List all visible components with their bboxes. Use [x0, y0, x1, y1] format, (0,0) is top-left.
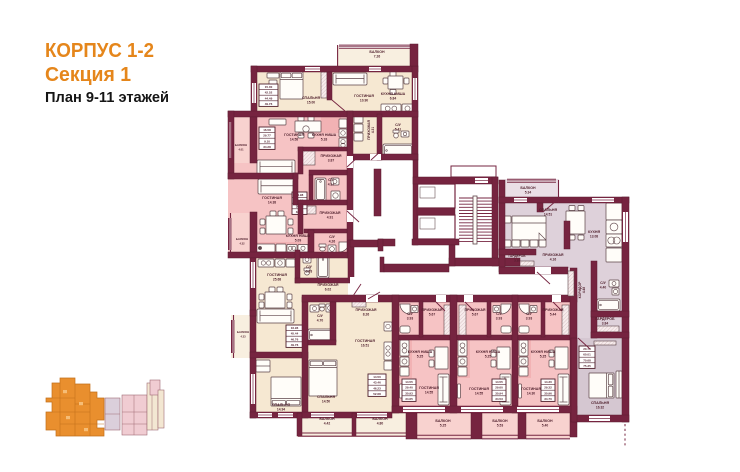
- svg-text:14.55: 14.55: [475, 392, 483, 396]
- svg-text:16.51: 16.51: [361, 344, 369, 348]
- svg-text:СПАЛЬНЯ: СПАЛЬНЯ: [317, 395, 336, 399]
- svg-text:БАЛКОН: БАЛКОН: [537, 419, 553, 423]
- svg-text:6.02: 6.02: [325, 288, 332, 292]
- svg-text:7.26: 7.26: [374, 55, 381, 59]
- svg-text:5.44: 5.44: [550, 313, 557, 317]
- svg-text:16.32: 16.32: [596, 406, 604, 410]
- svg-text:С/У: С/У: [329, 235, 336, 239]
- svg-text:4.31: 4.31: [371, 127, 375, 133]
- svg-text:44.49: 44.49: [265, 96, 273, 100]
- svg-text:75.35: 75.35: [583, 364, 591, 368]
- svg-text:34.53: 34.53: [495, 397, 503, 401]
- svg-text:3.35: 3.35: [514, 259, 520, 263]
- svg-text:ПРИХОЖАЯ: ПРИХОЖАЯ: [355, 308, 376, 312]
- svg-text:4.40: 4.40: [600, 286, 607, 290]
- svg-text:БАЛКОН: БАЛКОН: [236, 237, 248, 241]
- svg-text:БАЛКОН: БАЛКОН: [492, 419, 508, 423]
- svg-text:14.55: 14.55: [495, 380, 503, 384]
- svg-text:БАЛКОН: БАЛКОН: [237, 330, 249, 334]
- svg-text:30.94: 30.94: [495, 391, 503, 395]
- svg-text:14.94: 14.94: [277, 408, 285, 412]
- svg-text:5.25: 5.25: [440, 424, 447, 428]
- svg-text:ГОСТИНАЯ: ГОСТИНАЯ: [419, 386, 439, 390]
- svg-text:25.68: 25.68: [273, 278, 281, 282]
- svg-text:6.84: 6.84: [390, 97, 397, 101]
- svg-text:5.67: 5.67: [429, 313, 436, 317]
- svg-text:5.41: 5.41: [395, 128, 402, 132]
- svg-text:ПРИХОЖАЯ: ПРИХОЖАЯ: [542, 308, 563, 312]
- svg-text:ГАРДЕРОБ: ГАРДЕРОБ: [595, 317, 615, 321]
- svg-text:5.53: 5.53: [497, 424, 504, 428]
- svg-text:ГОСТИНАЯ: ГОСТИНАЯ: [469, 387, 489, 391]
- svg-text:14.50: 14.50: [373, 375, 381, 379]
- svg-text:5.34: 5.34: [525, 191, 532, 195]
- svg-text:46.23: 46.23: [373, 386, 381, 390]
- svg-text:14.55: 14.55: [405, 380, 413, 384]
- svg-text:БАЛКОН: БАЛКОН: [319, 417, 335, 421]
- svg-text:3.93: 3.93: [496, 317, 503, 321]
- svg-text:4.26: 4.26: [329, 240, 336, 244]
- svg-text:5.67: 5.67: [472, 313, 479, 317]
- svg-text:4.91: 4.91: [327, 216, 334, 220]
- svg-text:15.00: 15.00: [265, 85, 273, 89]
- svg-text:14.30: 14.30: [527, 392, 535, 396]
- svg-text:ГОСТИНАЯ: ГОСТИНАЯ: [267, 273, 287, 277]
- svg-text:5.18: 5.18: [321, 138, 328, 142]
- svg-text:5.09: 5.09: [295, 239, 302, 243]
- svg-text:КУХНЯ НИША: КУХНЯ НИША: [312, 133, 337, 137]
- svg-text:БАЛКОН: БАЛКОН: [435, 419, 451, 423]
- svg-text:БАЛКОН: БАЛКОН: [520, 186, 536, 190]
- svg-text:34.28: 34.28: [263, 145, 271, 149]
- svg-text:4.80: 4.80: [377, 422, 384, 426]
- svg-text:49.76: 49.76: [265, 102, 273, 106]
- svg-text:5.40: 5.40: [542, 424, 549, 428]
- svg-text:КУХНЯ НИША: КУХНЯ НИША: [531, 350, 556, 354]
- svg-text:С/У: С/У: [407, 312, 414, 316]
- svg-text:Секция 1: Секция 1: [45, 64, 131, 86]
- svg-text:29.32: 29.32: [544, 386, 552, 390]
- svg-text:14.38: 14.38: [268, 201, 276, 205]
- svg-text:4.32: 4.32: [239, 242, 245, 246]
- svg-text:10.90: 10.90: [360, 99, 368, 103]
- svg-text:С/У: С/У: [306, 265, 313, 269]
- svg-text:14.58: 14.58: [290, 138, 298, 142]
- svg-text:30.96: 30.96: [544, 391, 552, 395]
- svg-text:5.25: 5.25: [485, 355, 492, 359]
- svg-text:3.93: 3.93: [407, 317, 414, 321]
- svg-text:ПРИХОЖАЯ: ПРИХОЖАЯ: [464, 308, 485, 312]
- svg-text:14.55: 14.55: [425, 391, 433, 395]
- svg-text:С/У: С/У: [395, 123, 402, 127]
- svg-text:9.10: 9.10: [264, 139, 270, 143]
- svg-text:15.00: 15.00: [307, 101, 315, 105]
- svg-text:70.68: 70.68: [583, 358, 591, 362]
- svg-text:16.96: 16.96: [291, 326, 299, 330]
- svg-text:КУХНЯ НИША: КУХНЯ НИША: [286, 234, 311, 238]
- svg-text:План 9-11 этажей: План 9-11 этажей: [45, 89, 169, 106]
- svg-text:3.87: 3.87: [328, 159, 335, 163]
- svg-text:13.08: 13.08: [590, 235, 598, 239]
- svg-text:14.50: 14.50: [322, 400, 330, 404]
- svg-text:СПАЛЬНЯ: СПАЛЬНЯ: [302, 96, 321, 100]
- svg-text:5.25: 5.25: [540, 355, 547, 359]
- svg-text:52.68: 52.68: [373, 392, 381, 396]
- svg-text:4.01: 4.01: [238, 148, 244, 152]
- svg-text:43.46: 43.46: [373, 381, 381, 385]
- svg-text:КУХНЯ НИША: КУХНЯ НИША: [381, 92, 406, 96]
- svg-text:16.58: 16.58: [263, 128, 271, 132]
- svg-text:КУХНЯ НИША: КУХНЯ НИША: [408, 350, 433, 354]
- svg-text:ГОСТИНАЯ: ГОСТИНАЯ: [284, 133, 304, 137]
- svg-text:42.52: 42.52: [265, 91, 273, 95]
- svg-text:49.76: 49.76: [291, 343, 299, 347]
- svg-text:14.30: 14.30: [544, 380, 552, 384]
- svg-text:ПРИХОЖАЯ: ПРИХОЖАЯ: [319, 211, 340, 215]
- svg-text:46.76: 46.76: [291, 337, 299, 341]
- svg-text:СПАЛЬНЯ: СПАЛЬНЯ: [539, 208, 558, 212]
- svg-text:60.01: 60.01: [583, 353, 591, 357]
- svg-text:29.60: 29.60: [495, 386, 503, 390]
- svg-text:ГОСТИНАЯ: ГОСТИНАЯ: [355, 339, 375, 343]
- svg-text:ГОСТИНАЯ: ГОСТИНАЯ: [354, 94, 374, 98]
- svg-text:ГОСТИНАЯ: ГОСТИНАЯ: [262, 196, 282, 200]
- svg-text:45.44: 45.44: [291, 332, 299, 336]
- svg-text:4.70: 4.70: [317, 319, 324, 323]
- svg-text:ПРИХОЖАЯ: ПРИХОЖАЯ: [542, 253, 563, 257]
- svg-text:СПАЛЬНЯ: СПАЛЬНЯ: [591, 401, 610, 405]
- svg-text:4.33: 4.33: [240, 335, 246, 339]
- svg-text:4.48: 4.48: [582, 287, 586, 293]
- svg-text:С/У: С/У: [317, 314, 324, 318]
- svg-text:3.93: 3.93: [306, 270, 313, 274]
- svg-text:4.42: 4.42: [324, 422, 331, 426]
- svg-text:29.40: 29.40: [405, 386, 413, 390]
- svg-text:14.51: 14.51: [544, 213, 552, 217]
- svg-text:29.77: 29.77: [263, 134, 271, 138]
- svg-text:3.84: 3.84: [602, 322, 609, 326]
- svg-text:4.16: 4.16: [550, 258, 557, 262]
- svg-text:С/У: С/У: [600, 281, 607, 285]
- svg-text:34.70: 34.70: [544, 397, 552, 401]
- svg-text:БАЛКОН: БАЛКОН: [369, 50, 385, 54]
- svg-text:ПРИХОЖАЯ: ПРИХОЖАЯ: [320, 154, 341, 158]
- svg-text:СПАЛЬНЯ: СПАЛЬНЯ: [272, 403, 291, 407]
- svg-text:БАЛКОН: БАЛКОН: [235, 143, 247, 147]
- svg-text:С/У: С/У: [496, 312, 503, 316]
- svg-text:ГОСТИНАЯ: ГОСТИНАЯ: [521, 387, 541, 391]
- svg-text:ГАРДЕРОБ: ГАРДЕРОБ: [508, 254, 526, 258]
- svg-text:КУХНЯ НИША: КУХНЯ НИША: [476, 350, 501, 354]
- svg-text:КОРПУС 1-2: КОРПУС 1-2: [45, 40, 154, 62]
- svg-text:БАЛКОН: БАЛКОН: [372, 417, 388, 421]
- svg-text:30.93: 30.93: [405, 391, 413, 395]
- svg-text:34.65: 34.65: [405, 397, 413, 401]
- svg-text:КУХНЯ: КУХНЯ: [588, 230, 601, 234]
- svg-text:С/У: С/У: [328, 178, 335, 182]
- svg-text:4.14: 4.14: [328, 183, 335, 187]
- svg-text:ПРИХОЖАЯ: ПРИХОЖАЯ: [317, 283, 338, 287]
- svg-text:С/У: С/У: [526, 312, 533, 316]
- svg-text:3.93: 3.93: [526, 317, 533, 321]
- svg-text:ПРИХОЖАЯ: ПРИХОЖАЯ: [421, 308, 442, 312]
- svg-text:8.26: 8.26: [363, 313, 370, 317]
- svg-text:5.25: 5.25: [417, 355, 424, 359]
